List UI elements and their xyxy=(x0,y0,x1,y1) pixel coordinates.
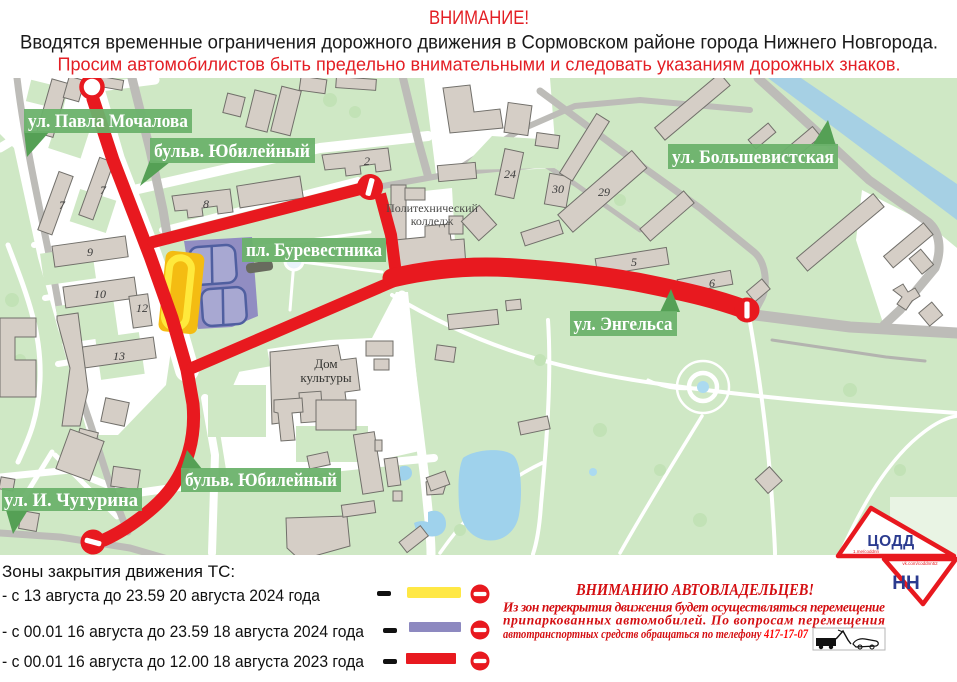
svg-text:7: 7 xyxy=(100,183,107,197)
svg-text:Политехнический: Политехнический xyxy=(386,201,478,215)
svg-text:ВНИМАНИЮ АВТОВЛАДЕЛЬЦЕВ!: ВНИМАНИЮ АВТОВЛАДЕЛЬЦЕВ! xyxy=(575,580,814,599)
svg-text:бульв. Юбилейный: бульв. Юбилейный xyxy=(154,141,310,162)
svg-text:1.me/coddnn: 1.me/coddnn xyxy=(853,549,880,554)
svg-text:бульв. Юбилейный: бульв. Юбилейный xyxy=(185,470,337,491)
svg-text:- с 00.01 16 августа до 23.59: - с 00.01 16 августа до 23.59 18 августа… xyxy=(2,623,365,641)
svg-text:10: 10 xyxy=(94,287,106,301)
svg-text:ул. Павла Мочалова: ул. Павла Мочалова xyxy=(28,111,188,132)
svg-text:припаркованных автомобилей. П: припаркованных автомобилей. По вопросам … xyxy=(503,613,885,628)
svg-text:30: 30 xyxy=(551,182,564,196)
svg-text:колледж: колледж xyxy=(411,214,454,228)
svg-text:ул. Большевистская: ул. Большевистская xyxy=(672,147,834,168)
svg-text:Вводятся временные ограничения: Вводятся временные ограничения дорожного… xyxy=(20,32,938,54)
svg-text:ВНИМАНИЕ!: ВНИМАНИЕ! xyxy=(429,8,529,29)
svg-text:ЦОДД: ЦОДД xyxy=(867,533,914,550)
svg-text:Дом: Дом xyxy=(314,356,337,371)
svg-text:культуры: культуры xyxy=(300,370,351,385)
svg-text:8: 8 xyxy=(203,197,209,211)
svg-text:6: 6 xyxy=(709,276,715,290)
svg-text:2: 2 xyxy=(364,154,370,168)
svg-text:НН: НН xyxy=(892,573,919,594)
svg-text:12: 12 xyxy=(136,301,148,315)
svg-text:- с 00.01 16 августа до 12.00: - с 00.01 16 августа до 12.00 18 августа… xyxy=(2,653,365,671)
svg-text:пл. Буревестника: пл. Буревестника xyxy=(246,240,382,261)
svg-text:автотранспортных средств обращ: автотранспортных средств обращаться по т… xyxy=(503,627,809,641)
svg-text:24: 24 xyxy=(504,167,516,181)
svg-text:13: 13 xyxy=(113,349,125,363)
svg-text:5: 5 xyxy=(631,255,637,269)
svg-text:Зоны закрытия движения ТС:: Зоны закрытия движения ТС: xyxy=(2,562,235,581)
svg-text:ул. Энгельса: ул. Энгельса xyxy=(574,314,673,335)
svg-text:7: 7 xyxy=(59,198,66,212)
svg-text:vk.com/coddnn52: vk.com/coddnn52 xyxy=(902,561,938,566)
svg-text:Просим автомобилистов быть пре: Просим автомобилистов быть предельно вни… xyxy=(58,54,901,75)
svg-text:9: 9 xyxy=(87,245,93,259)
svg-text:29: 29 xyxy=(598,185,610,199)
svg-text:ул. И. Чугурина: ул. И. Чугурина xyxy=(4,490,138,511)
svg-text:- с 13 августа до 23.59 20 авг: - с 13 августа до 23.59 20 августа 2024 … xyxy=(2,587,321,605)
